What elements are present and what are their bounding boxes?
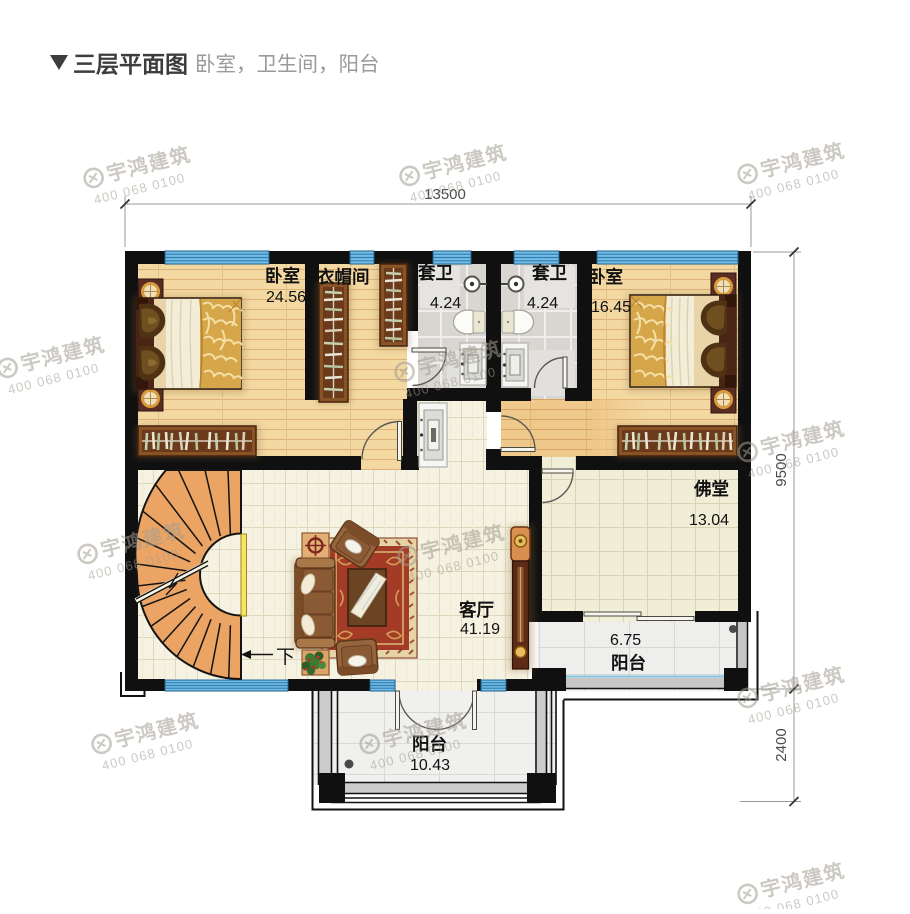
svg-text:41.19: 41.19 <box>460 621 500 638</box>
svg-text:衣帽间: 衣帽间 <box>317 267 370 287</box>
svg-text:阳台: 阳台 <box>611 653 646 673</box>
svg-text:套卫: 套卫 <box>417 263 453 283</box>
svg-text:卧室: 卧室 <box>588 267 623 287</box>
svg-text:下: 下 <box>276 647 295 668</box>
svg-text:卧室，卫生间，阳台: 卧室，卫生间，阳台 <box>195 53 380 76</box>
svg-text:24.56: 24.56 <box>266 289 306 306</box>
svg-text:客厅: 客厅 <box>458 600 494 620</box>
svg-text:6.75: 6.75 <box>610 632 641 649</box>
svg-text:4.24: 4.24 <box>430 295 461 312</box>
svg-text:卧室: 卧室 <box>265 266 300 286</box>
svg-text:4.24: 4.24 <box>527 295 558 312</box>
svg-text:16.45: 16.45 <box>591 299 631 316</box>
svg-text:2400: 2400 <box>773 728 790 761</box>
svg-text:套卫: 套卫 <box>531 263 567 283</box>
svg-text:佛堂: 佛堂 <box>693 479 729 499</box>
svg-text:三层平面图: 三层平面图 <box>73 51 188 77</box>
svg-text:13.04: 13.04 <box>689 512 729 529</box>
